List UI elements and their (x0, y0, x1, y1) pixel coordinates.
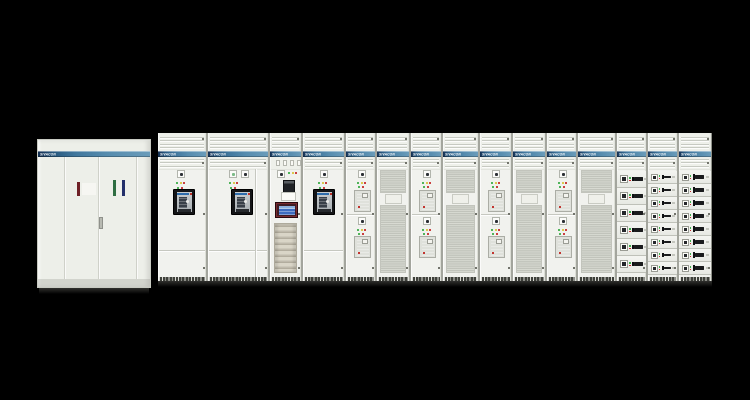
drawer-unit (682, 265, 689, 272)
vent-grille-mid (480, 157, 511, 169)
vent-slot (413, 137, 439, 138)
feeder-cassette (419, 236, 436, 258)
breaker-control-panel (237, 197, 245, 208)
brand-logo: SIVACON (272, 153, 288, 156)
vent-slot (348, 144, 373, 145)
vent-grille-mid (547, 157, 576, 169)
vent-slot (482, 162, 509, 163)
indicator-yellow (495, 182, 497, 184)
equipment-area (377, 169, 409, 277)
feeder-cassette (354, 190, 371, 212)
vent-slot (160, 140, 204, 141)
drawer-handle (664, 241, 671, 244)
unit-display (653, 176, 656, 179)
cassette-red-light (423, 252, 425, 254)
breaker-control-panel (179, 197, 187, 208)
screw (673, 138, 675, 140)
screw (298, 213, 300, 215)
status-green (690, 227, 692, 229)
cassette-label (563, 239, 569, 244)
indicator-green (288, 172, 290, 174)
breaker-face (235, 192, 250, 212)
vent-grille-mid (443, 157, 478, 169)
drawer-unit (682, 187, 689, 194)
vent-slot (619, 140, 644, 141)
equipment-area (303, 169, 344, 277)
unit-display (684, 176, 687, 179)
vent-slot (681, 162, 709, 163)
vent-slot (210, 162, 266, 163)
mcc-drawer (679, 236, 711, 249)
busbar-rack (274, 223, 297, 273)
name-plate (385, 194, 402, 204)
screw (406, 213, 408, 215)
screw (371, 162, 373, 164)
indicator-green (176, 182, 178, 184)
screw (508, 267, 510, 269)
mesh-grille-lower (516, 205, 542, 273)
cassette-label (563, 193, 569, 198)
vent-slot (210, 159, 266, 160)
screw (202, 138, 204, 140)
drawer-handle (664, 215, 671, 218)
door-seam (136, 157, 137, 279)
vent-slot (580, 162, 613, 163)
brand-band: SIVACON (270, 151, 301, 157)
feeder-cassette (555, 236, 572, 258)
indicator-red (427, 233, 429, 235)
screw (572, 138, 574, 140)
section-vent-door-3: SIVACON (513, 133, 547, 281)
display-glyph (180, 173, 183, 176)
terminal-blocks (270, 157, 301, 169)
vent-grille-top (480, 133, 511, 151)
vent-slot (515, 147, 543, 148)
status-green (659, 214, 661, 216)
cassette-face (357, 239, 369, 256)
status-green (690, 201, 692, 203)
screw (541, 138, 543, 140)
unit-display (684, 267, 687, 270)
screw (437, 138, 439, 140)
screw (507, 138, 509, 140)
distribution-cabinet: SIVACON (37, 139, 151, 288)
indicator-red (496, 186, 498, 188)
sticker-white-2 (117, 181, 121, 195)
vent-grille-top (346, 133, 375, 151)
cassette-label (496, 239, 502, 244)
screw (405, 162, 407, 164)
terminal-block (276, 160, 280, 166)
mcc-drawer (679, 262, 711, 275)
vent-slot (650, 147, 675, 148)
vent-grille-top (617, 133, 646, 151)
indicator-lights (288, 172, 297, 174)
screw (341, 213, 343, 215)
air-circuit-breaker (231, 189, 253, 215)
floor-shadow (39, 288, 149, 294)
mcc-drawer (679, 197, 711, 210)
display-glyph (562, 220, 565, 223)
screw (542, 213, 544, 215)
screw (475, 267, 477, 269)
screw (265, 213, 267, 215)
perforated-doors (38, 157, 150, 279)
indicator-green (422, 229, 424, 231)
screw (573, 213, 575, 215)
sticker-navy (122, 180, 125, 196)
vent-grille-top (578, 133, 615, 151)
cabinet-top-panel (38, 140, 150, 151)
mcc-drawer (679, 249, 711, 262)
breaker-face (177, 192, 192, 212)
cassette-red-light (358, 252, 360, 254)
status-red (659, 256, 661, 258)
mesh-grille-upper (446, 170, 475, 193)
drawer-unit (651, 187, 658, 194)
status-red (659, 178, 661, 180)
drawer-handle (664, 267, 671, 270)
indicator-yellow (562, 229, 564, 231)
indicator-yellow (562, 182, 564, 184)
breaker-controller (277, 170, 285, 178)
unit-display (653, 215, 656, 218)
vent-slot (272, 147, 299, 148)
display-glyph (280, 173, 283, 176)
vent-slot (482, 147, 509, 148)
mesh-grille-upper (380, 170, 406, 193)
drawer-handle (664, 189, 671, 192)
mesh-grille-lower (380, 205, 406, 273)
indicator-lights (358, 186, 364, 188)
vent-slot (348, 162, 373, 163)
mcc-drawer (617, 256, 646, 273)
vent-slot (650, 162, 675, 163)
indicator-green (492, 186, 494, 188)
drawer-label (644, 178, 647, 179)
mcc-drawer (648, 210, 677, 223)
breaker-controller (423, 217, 431, 225)
vent-grille-mid (513, 157, 545, 169)
screw (642, 138, 644, 140)
drawer-label (672, 176, 675, 177)
brand-logo: SIVACON (549, 153, 565, 156)
indicator-red (565, 229, 567, 231)
unit-display (653, 254, 656, 257)
status-red (629, 265, 631, 267)
vent-slot (619, 137, 644, 138)
door-seam (255, 169, 256, 277)
unit-display (684, 241, 687, 244)
mesh-grille-lower (446, 205, 475, 273)
status-red (690, 217, 692, 219)
vent-slot (305, 144, 342, 145)
switchgear-lineup: SIVACONSIVACONSIVACONSIVACONSIVACONSIVAC… (158, 133, 712, 281)
screw (340, 138, 342, 140)
vent-grille-mid (208, 157, 268, 169)
section-feeder-2: SIVACON (411, 133, 443, 281)
vent-slot (650, 137, 675, 138)
status-red (659, 243, 661, 245)
breaker-label-strip (177, 193, 189, 196)
indicator-lights (558, 182, 567, 184)
door-seam (64, 157, 65, 279)
indicator-green (492, 233, 494, 235)
mcc-drawer (648, 249, 677, 262)
breaker-label-strip (317, 193, 329, 196)
vent-slot (515, 144, 543, 145)
vent-slot (580, 147, 613, 148)
indicator-green (558, 229, 560, 231)
drawer-label (644, 263, 647, 264)
cassette-label (496, 193, 502, 198)
status-green (629, 194, 631, 196)
drawer-label (706, 176, 709, 177)
mcc-drawer (617, 171, 646, 188)
screw (572, 162, 574, 164)
unit-display (622, 194, 627, 199)
equipment-area (411, 169, 441, 277)
screw (438, 213, 440, 215)
panel-seam (304, 250, 343, 251)
breaker-controller (177, 170, 185, 178)
status-green (690, 240, 692, 242)
vent-slot (445, 144, 476, 145)
drawer-unit (620, 243, 629, 252)
indicator-green (491, 229, 493, 231)
brand-logo: SIVACON (348, 153, 364, 156)
drawer-handle (664, 202, 671, 205)
drawer-unit (651, 252, 658, 259)
breaker-red-button (330, 193, 332, 196)
vent-slot (160, 137, 204, 138)
unit-display (653, 189, 656, 192)
section-incomer-3: SIVACON (303, 133, 346, 281)
vent-slot (160, 166, 204, 167)
drawer-status-lights (629, 211, 631, 216)
status-green (629, 211, 631, 213)
section-vent-door-4: SIVACON (578, 133, 617, 281)
drawer-label (706, 254, 709, 255)
vent-grille-mid (679, 157, 711, 169)
indicator-lights (357, 229, 366, 231)
indicator-red (295, 172, 297, 174)
breaker-controller (358, 170, 366, 178)
indicator-red (236, 182, 238, 184)
vent-slot (619, 162, 644, 163)
vent-grille-mid (158, 157, 206, 169)
screw (265, 267, 267, 269)
status-red (690, 243, 692, 245)
vent-slot (580, 144, 613, 145)
vent-slot (482, 144, 509, 145)
vent-slot (619, 166, 644, 167)
vent-slot (413, 144, 439, 145)
status-green (659, 175, 661, 177)
drawer-status-lights (659, 266, 661, 271)
vent-slot (379, 166, 407, 167)
vent-grille-top (443, 133, 478, 151)
vent-slot (379, 137, 407, 138)
vent-grille-mid (346, 157, 375, 169)
indicator-green (357, 229, 359, 231)
feeder-cassette (419, 190, 436, 212)
terminal-block (297, 160, 301, 166)
floor-shadow (158, 281, 712, 287)
drawer-label (644, 229, 647, 230)
unit-display (684, 215, 687, 218)
drawer-status-lights (690, 188, 692, 193)
vent-slot (619, 159, 644, 160)
drawer-handle (695, 227, 704, 231)
breaker-knob (244, 200, 247, 203)
vent-slot (681, 166, 709, 167)
vent-slot (445, 159, 476, 160)
touch-panel (275, 202, 298, 218)
cassette-face (422, 239, 434, 256)
vent-slot (305, 137, 342, 138)
panel-seam (209, 250, 267, 251)
display-glyph (495, 173, 498, 176)
brand-logo: SIVACON (619, 153, 635, 156)
status-green (629, 245, 631, 247)
feeder-cassette (488, 190, 505, 212)
brand-logo: SIVACON (482, 153, 498, 156)
vent-slot (305, 140, 342, 141)
mesh-grille-upper (581, 170, 612, 193)
screw (673, 162, 675, 164)
unit-display (653, 267, 656, 270)
vent-slot (445, 166, 476, 167)
vent-slot (210, 147, 266, 148)
sticker-red (77, 182, 80, 196)
section-mcc-column-3: SIVACON (679, 133, 712, 281)
unit-display (622, 211, 627, 216)
vent-slot (515, 140, 543, 141)
indicator-yellow (292, 172, 294, 174)
cassette-face (491, 193, 503, 210)
status-red (690, 191, 692, 193)
display-glyph (426, 173, 429, 176)
breaker-knob (186, 200, 189, 203)
mcc-drawer (679, 184, 711, 197)
drawer-status-lights (690, 266, 692, 271)
section-mcc-column-2: SIVACON (648, 133, 679, 281)
drawer-status-lights (690, 227, 692, 232)
vent-slot (580, 159, 613, 160)
cassette-face (558, 193, 570, 210)
vent-slot (379, 144, 407, 145)
indicator-green (357, 182, 359, 184)
vent-slot (515, 162, 543, 163)
status-red (690, 269, 692, 271)
status-green (690, 188, 692, 190)
door-handle (99, 217, 103, 229)
vent-grille-top (377, 133, 409, 151)
name-plate (452, 194, 469, 204)
drawer-handle (695, 266, 704, 270)
drawer-label (706, 189, 709, 190)
drawer-status-lights (659, 214, 661, 219)
unit-display (684, 254, 687, 257)
display-glyph (426, 220, 429, 223)
screw (507, 162, 509, 164)
terminal-block (290, 160, 294, 166)
drawer-status-lights (659, 175, 661, 180)
indicator-red (427, 186, 429, 188)
brand-logo: SIVACON (445, 153, 461, 156)
breaker-controller (492, 217, 500, 225)
drawer-unit (682, 174, 689, 181)
indicator-lights (423, 233, 429, 235)
sticker-white (82, 183, 96, 195)
cassette-face (422, 193, 434, 210)
vent-slot (482, 166, 509, 167)
screw (264, 162, 266, 164)
cassette-red-light (492, 252, 494, 254)
status-green (629, 177, 631, 179)
mcc-drawer (679, 223, 711, 236)
indicator-red (364, 182, 366, 184)
vent-grille-top (679, 133, 711, 151)
drawer-label (672, 228, 675, 229)
cabinet-base (38, 279, 150, 287)
unit-display (653, 241, 656, 244)
display-glyph (361, 173, 364, 176)
brand-logo: SIVACON (210, 153, 226, 156)
drawer-handle (695, 175, 704, 179)
feeder-cassette (354, 236, 371, 258)
screw (707, 138, 709, 140)
vent-slot (515, 137, 543, 138)
cassette-label (427, 193, 433, 198)
mcc-drawer (617, 222, 646, 239)
vent-slot (482, 137, 509, 138)
screw (708, 267, 710, 269)
indicator-lights (229, 182, 238, 184)
equipment-area (443, 169, 478, 277)
vent-grille-top (270, 133, 301, 151)
vent-slot (650, 144, 675, 145)
vent-slot (413, 162, 439, 163)
vent-slot (305, 166, 342, 167)
screw (474, 162, 476, 164)
screw (573, 267, 575, 269)
indicator-yellow (495, 229, 497, 231)
vent-slot (515, 159, 543, 160)
drawer-unit (682, 200, 689, 207)
vent-grille-mid (303, 157, 344, 169)
display-glyph (323, 173, 326, 176)
cassette-red-light (423, 206, 425, 208)
indicator-green (358, 186, 360, 188)
indicator-red (429, 229, 431, 231)
vent-slot (379, 162, 407, 163)
status-red (659, 230, 661, 232)
feeder-cassette (555, 190, 572, 212)
vent-slot (348, 137, 373, 138)
drawer-unit (651, 226, 658, 233)
drawer-status-lights (629, 177, 631, 182)
equipment-area (648, 169, 677, 279)
equipment-area (270, 169, 301, 277)
sticker-green (113, 180, 116, 196)
breaker-controller (358, 217, 366, 225)
panel-seam (347, 214, 374, 215)
brand-logo: SIVACON (515, 153, 531, 156)
breaker-control-panel (319, 197, 327, 208)
vent-slot (445, 162, 476, 163)
